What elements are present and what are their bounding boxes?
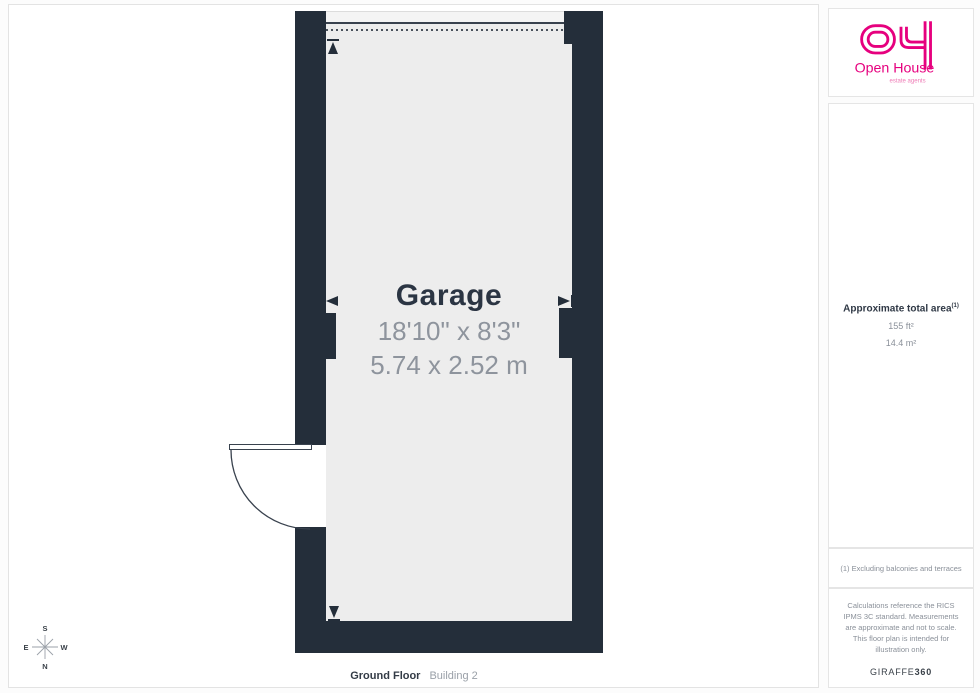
room-name: Garage <box>326 279 572 313</box>
wall-right-door-jamb <box>564 11 572 44</box>
logo-o-inner <box>868 32 888 46</box>
garage-door-dashed-line <box>326 29 572 31</box>
total-area-metric: 14.4 m² <box>886 338 917 348</box>
room-label: Garage 18'10" x 8'3" 5.74 x 2.52 m <box>326 279 572 381</box>
disclaimer-text: Calculations reference the RICS IPMS 3C … <box>842 601 960 655</box>
floorplan-canvas: Garage 18'10" x 8'3" 5.74 x 2.52 m S N E… <box>8 4 819 688</box>
giraffe360-credit: GIRAFFE360 <box>870 667 932 677</box>
wall-left-lower <box>295 527 326 622</box>
dimension-arrow-up-icon <box>327 39 339 54</box>
compass-s-label: S <box>42 624 47 633</box>
logo-h-stroke <box>901 26 925 47</box>
credit-brand: GIRAFFE <box>870 667 915 677</box>
floor-name: Ground Floor <box>350 670 420 682</box>
compass-icon: S N E W <box>22 621 68 671</box>
logo-h-stroke-inner <box>906 26 925 41</box>
dimension-arrow-down-icon <box>328 606 340 621</box>
disclaimer-card: Calculations reference the RICS IPMS 3C … <box>828 588 974 688</box>
compass-e-label: E <box>23 643 28 652</box>
logo-o-outer <box>862 25 895 52</box>
logo-tagline-text: estate agents <box>890 78 926 84</box>
open-house-logo: Open House estate agents <box>846 18 956 88</box>
door-swing-arc <box>226 444 318 536</box>
wall-bottom <box>295 621 603 653</box>
garage-door-line <box>326 22 572 24</box>
total-area-title: Approximate total area(1) <box>843 303 959 314</box>
footnote-text: (1) Excluding balconies and terraces <box>840 564 961 573</box>
room-dimensions-imperial: 18'10" x 8'3" <box>326 317 572 347</box>
agency-logo-card: Open House estate agents <box>828 8 974 97</box>
logo-brand-text: Open House <box>855 60 935 76</box>
wall-left-upper <box>295 11 326 445</box>
wall-right <box>572 11 603 621</box>
compass-w-label: W <box>60 643 68 652</box>
floor-label: Ground FloorBuilding 2 <box>9 670 819 682</box>
building-name: Building 2 <box>429 670 477 682</box>
total-area-imperial: 155 ft² <box>888 321 914 331</box>
total-area-card: Approximate total area(1) 155 ft² 14.4 m… <box>828 103 974 548</box>
footnote-card: (1) Excluding balconies and terraces <box>828 548 974 588</box>
room-dimensions-metric: 5.74 x 2.52 m <box>326 351 572 381</box>
footnote-marker: (1) <box>952 303 959 309</box>
credit-suffix: 360 <box>915 667 932 677</box>
